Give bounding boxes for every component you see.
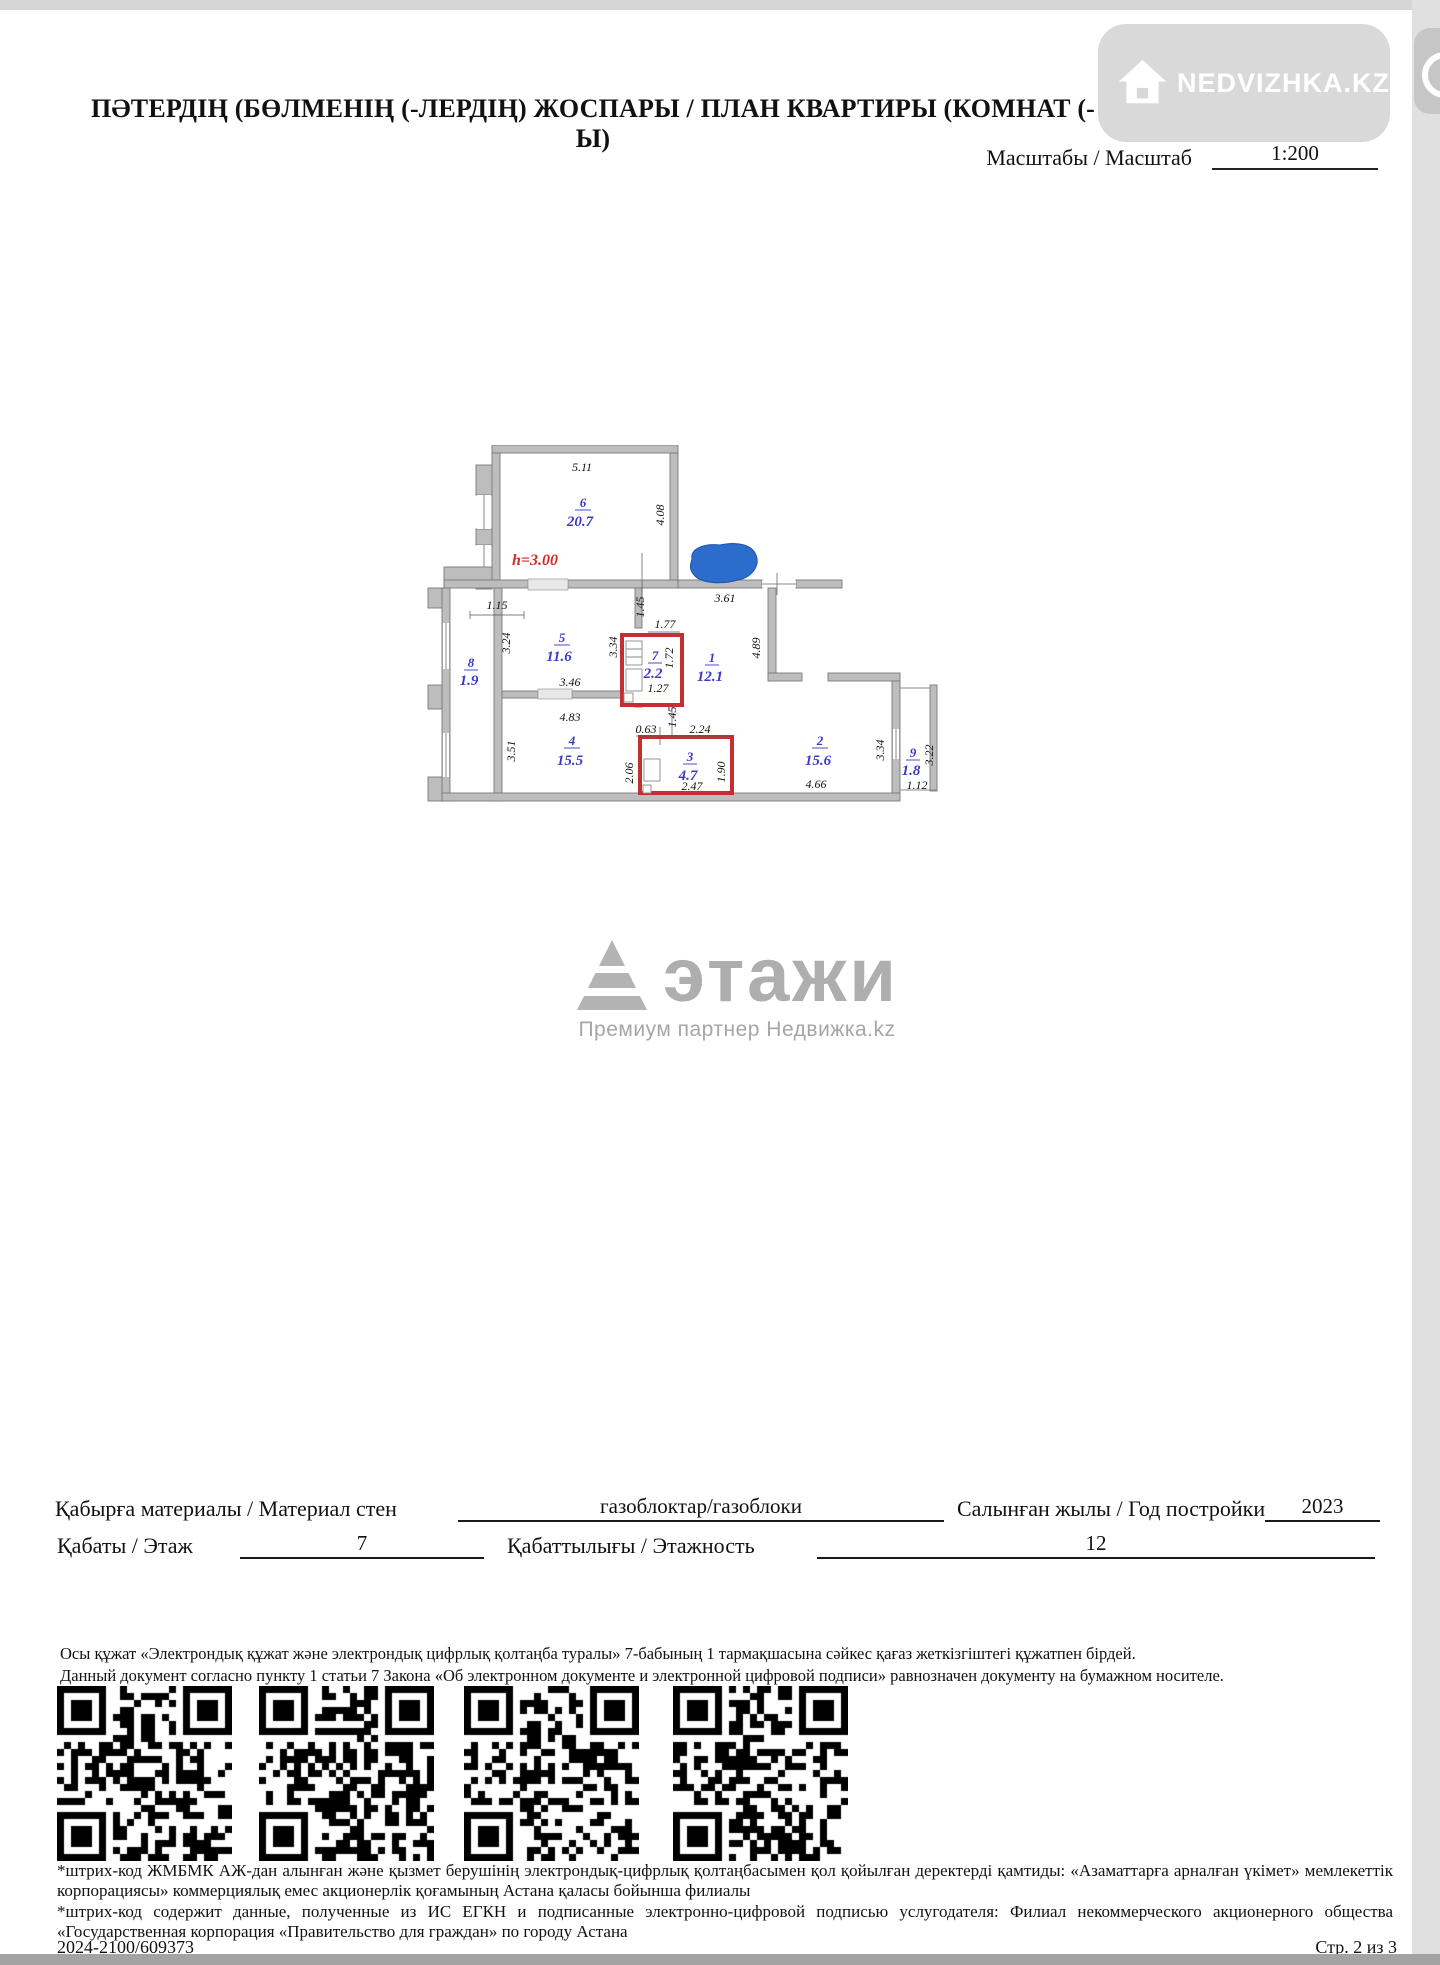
clipped-watermark-badge	[1414, 28, 1440, 114]
dim-label: 1.15	[487, 598, 508, 612]
dim-label: 3.34	[606, 637, 620, 659]
dim-label: 3.22	[922, 745, 936, 767]
floors-total-value: 12	[817, 1531, 1375, 1559]
dim-label: 1.45	[665, 707, 679, 728]
room-number: 2	[816, 733, 824, 748]
etagi-watermark: этажи Премиум партнер Недвижка.kz	[515, 936, 959, 1042]
barcode-footnotes: *штрих-код ЖМБМК АЖ-дан алынған және қыз…	[57, 1861, 1393, 1943]
room-number: 5	[559, 630, 566, 645]
room-area: 15.5	[557, 753, 584, 769]
dim-label: 4.08	[653, 505, 667, 526]
dim-label: 4.83	[560, 710, 581, 724]
room-number: 8	[468, 655, 475, 670]
nedvizhka-text: NEDVIZHKA.KZ	[1177, 68, 1390, 99]
room-number: 6	[580, 495, 587, 510]
legal-note-kk: Осы құжат «Электрондық құжат және электр…	[60, 1643, 1390, 1665]
dim-label: 1.45	[633, 597, 647, 618]
room-area: 20.7	[566, 514, 594, 530]
etagi-subtitle: Премиум партнер Недвижка.kz	[515, 1018, 959, 1042]
scan-edge-top	[0, 0, 1440, 10]
room-number: 1	[709, 650, 716, 665]
dim-label: 3.46	[559, 675, 581, 689]
floors-total-label: Қабаттылығы / Этажность	[507, 1533, 755, 1559]
ceiling-height-note: h=3.00	[512, 552, 558, 569]
dim-label: 3.51	[504, 741, 518, 763]
qr-code-4	[673, 1686, 848, 1861]
dim-label: 0.63	[636, 722, 657, 736]
dim-label: 3.34	[873, 740, 887, 762]
floor-label: Қабаты / Этаж	[57, 1533, 193, 1559]
qr-code-3	[464, 1686, 639, 1861]
barcode-note-kk: *штрих-код ЖМБМК АЖ-дан алынған және қыз…	[57, 1861, 1393, 1900]
dim-label: 2.24	[690, 722, 711, 736]
floor-plan: 5.11 4.08 1.15 3.24 1.45 3.61 1.77 3.34 …	[420, 445, 980, 845]
room-area: 11.6	[546, 649, 572, 665]
dim-label: 5.11	[572, 460, 592, 474]
scale-label: Масштабы / Масштаб	[880, 145, 1192, 171]
barcode-note-ru: *штрих-код содержит данные, полученные и…	[57, 1902, 1393, 1941]
dim-label: 1.90	[714, 762, 728, 783]
room-area: 2.2	[643, 666, 663, 682]
etagi-wordmark: этажи	[663, 938, 899, 1014]
dim-label: 1.27	[648, 681, 670, 695]
room-area: 12.1	[697, 669, 723, 685]
dim-label: 4.66	[806, 777, 827, 791]
room-area: 1.8	[902, 763, 921, 779]
scan-edge-right	[1412, 0, 1440, 1965]
room-area: 4.7	[678, 768, 698, 784]
partial-house-icon	[1422, 52, 1440, 98]
house-icon	[1118, 52, 1167, 114]
wall-material-label: Қабырға материалы / Материал стен	[55, 1496, 397, 1522]
room-number: 9	[910, 745, 917, 760]
legal-note: Осы құжат «Электрондық құжат және электр…	[60, 1643, 1390, 1687]
build-year-label: Салынған жылы / Год постройки	[957, 1496, 1265, 1522]
scale-value: 1:200	[1212, 141, 1378, 170]
nedvizhka-watermark: NEDVIZHKA.KZ	[1098, 24, 1390, 142]
room-number: 7	[652, 648, 659, 663]
dim-label: 4.89	[749, 638, 763, 659]
legal-note-ru: Данный документ согласно пункту 1 статьи…	[60, 1665, 1390, 1687]
dim-label: 1.12	[907, 778, 928, 792]
wall-material-value: газоблоктар/газоблоки	[458, 1494, 944, 1522]
dim-label: 2.06	[622, 763, 636, 784]
room-area: 1.9	[460, 673, 479, 689]
etagi-logo-icon	[575, 936, 649, 1014]
room-number: 4	[568, 733, 576, 748]
dim-label: 3.61	[714, 591, 736, 605]
scan-edge-bottom	[0, 1954, 1440, 1965]
dim-label: 1.72	[662, 648, 676, 669]
floor-value: 7	[240, 1531, 484, 1559]
build-year-value: 2023	[1265, 1494, 1380, 1522]
document-page: ПӘТЕРДІҢ (БӨЛМЕНІҢ (-ЛЕРДІҢ) ЖОСПАРЫ / П…	[0, 0, 1440, 1965]
qr-code-2	[259, 1686, 434, 1861]
blue-redaction-blob	[690, 543, 757, 582]
room-area: 15.6	[805, 753, 832, 769]
room-number: 3	[686, 749, 694, 764]
dim-label: 3.24	[499, 633, 513, 655]
qr-code-1	[57, 1686, 232, 1861]
dim-label: 1.77	[655, 617, 677, 631]
